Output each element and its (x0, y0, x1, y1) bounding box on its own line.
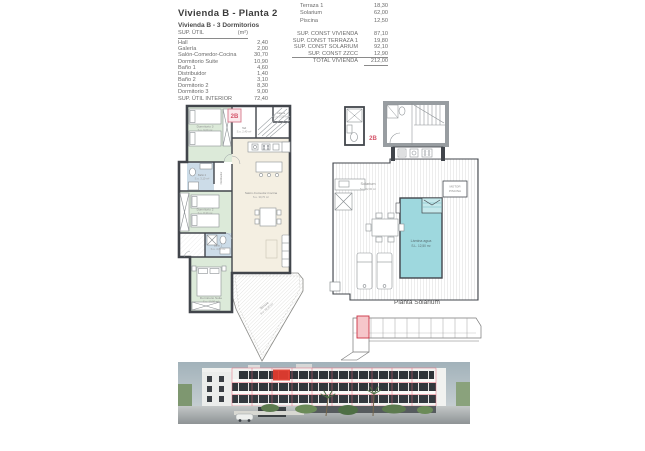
highlighted-unit-photo (273, 370, 290, 381)
kitchen-island (256, 162, 282, 177)
table-total-row: TOTAL VIVIENDA212,00 (292, 58, 388, 66)
svg-text:Dormitorio 2: Dormitorio 2 (197, 208, 214, 212)
svg-text:MOTOR: MOTOR (449, 185, 461, 189)
hallway-area (214, 162, 232, 191)
table-row: Solarium62,00 (300, 10, 388, 17)
kitchen-counter (248, 142, 290, 152)
right-trees (456, 382, 470, 410)
building-outline (353, 318, 481, 352)
table-row: SUP. CONST ZZCC12,90 (292, 51, 388, 59)
left-tower (202, 372, 232, 410)
table-header: SUP. ÚTIL (m²) (178, 30, 248, 39)
table-header-unit: (m²) (238, 30, 248, 36)
pool-label: Lámina agua (411, 239, 432, 243)
site-wing (341, 352, 369, 360)
unit-badge-label: 2B (369, 136, 377, 142)
table-row: Piscina12,50 (300, 18, 388, 25)
svg-text:PISCINA: PISCINA (449, 189, 461, 193)
pool-area-label: S.L. 12,50 m² (411, 244, 430, 248)
svg-text:S.u. 4,60 m²: S.u. 4,60 m² (211, 247, 226, 251)
table-total-row: SUP. ÚTIL INTERIOR72,40 (178, 96, 268, 102)
svg-text:S.u. 8,30 m²: S.u. 8,30 m² (198, 211, 213, 215)
stair-block (385, 103, 447, 145)
svg-text:S.u. 2,00 m²: S.u. 2,00 m² (274, 115, 289, 119)
table-header-label: SUP. ÚTIL (178, 30, 238, 36)
page-subtitle: Vivienda B - 3 Dormitorios (178, 22, 259, 29)
unit-badge-label: 2B (231, 114, 239, 120)
pool-motor-box: MOTOR PISCINA (443, 181, 467, 197)
unit-badge: 2B (228, 109, 241, 122)
solarium-caption: Planta Solarium (394, 299, 440, 306)
building-photo (178, 362, 470, 424)
solarium-area-label: S.u. 62,00 m² (360, 187, 376, 191)
table-row: SUP. CONST SOLARIUM92,10 (292, 44, 388, 51)
building (202, 364, 446, 410)
svg-text:Dormitorio 3: Dormitorio 3 (197, 125, 214, 129)
left-trees (178, 384, 192, 408)
floor-plan-apartment: 2B Hall S.u. 2,40 m² Galería S.u. 2,00 m… (178, 102, 310, 366)
solarium-bathroom (345, 107, 364, 145)
patio-area (179, 233, 205, 257)
svg-text:S.u. 9,00 m²: S.u. 9,00 m² (198, 128, 213, 132)
table-row: SUP. CONST VIVIENDA87,10 (292, 31, 388, 38)
floor-plan-solarium: 2B (330, 95, 480, 313)
pool: Lámina agua S.L. 12,50 m² (396, 198, 442, 278)
summer-kitchen (391, 147, 445, 161)
page-title: Vivienda B - Planta 2 (178, 8, 278, 19)
solarium-label: Solarium (361, 182, 376, 186)
svg-text:Distribuidor: Distribuidor (220, 172, 223, 185)
plan-sheet: Vivienda B - Planta 2 Vivienda B - 3 Dor… (0, 0, 645, 451)
terrace (232, 273, 303, 361)
table-row: Terraza 118,30 (300, 3, 388, 10)
exterior-area-table: Terraza 118,30 Solarium62,00 Piscina12,5… (300, 3, 388, 25)
svg-text:S.u. 3,10 m²: S.u. 3,10 m² (195, 177, 210, 181)
key-plan (338, 313, 484, 361)
highlighted-unit (357, 316, 369, 338)
balcony-bands (232, 371, 436, 406)
svg-text:Salón-Comedor-Cocina: Salón-Comedor-Cocina (245, 191, 278, 195)
constructed-area-table: SUP. CONST VIVIENDA87,10 SUP. CONST TERR… (292, 31, 388, 66)
svg-text:S.u. 2,40 m²: S.u. 2,40 m² (237, 130, 252, 134)
living-room-area (232, 138, 290, 273)
svg-text:S.u. 10,90 m²: S.u. 10,90 m² (203, 300, 219, 304)
deck-step (330, 282, 340, 291)
svg-text:Dormitorio Suite: Dormitorio Suite (200, 296, 222, 300)
svg-text:S.u. 30,70 m²: S.u. 30,70 m² (253, 195, 269, 199)
table-row: SUP. CONST TERRAZA 119,80 (292, 38, 388, 45)
useful-area-table: SUP. ÚTIL (m²) Hall2,40 Galería2,00 Saló… (178, 30, 268, 102)
